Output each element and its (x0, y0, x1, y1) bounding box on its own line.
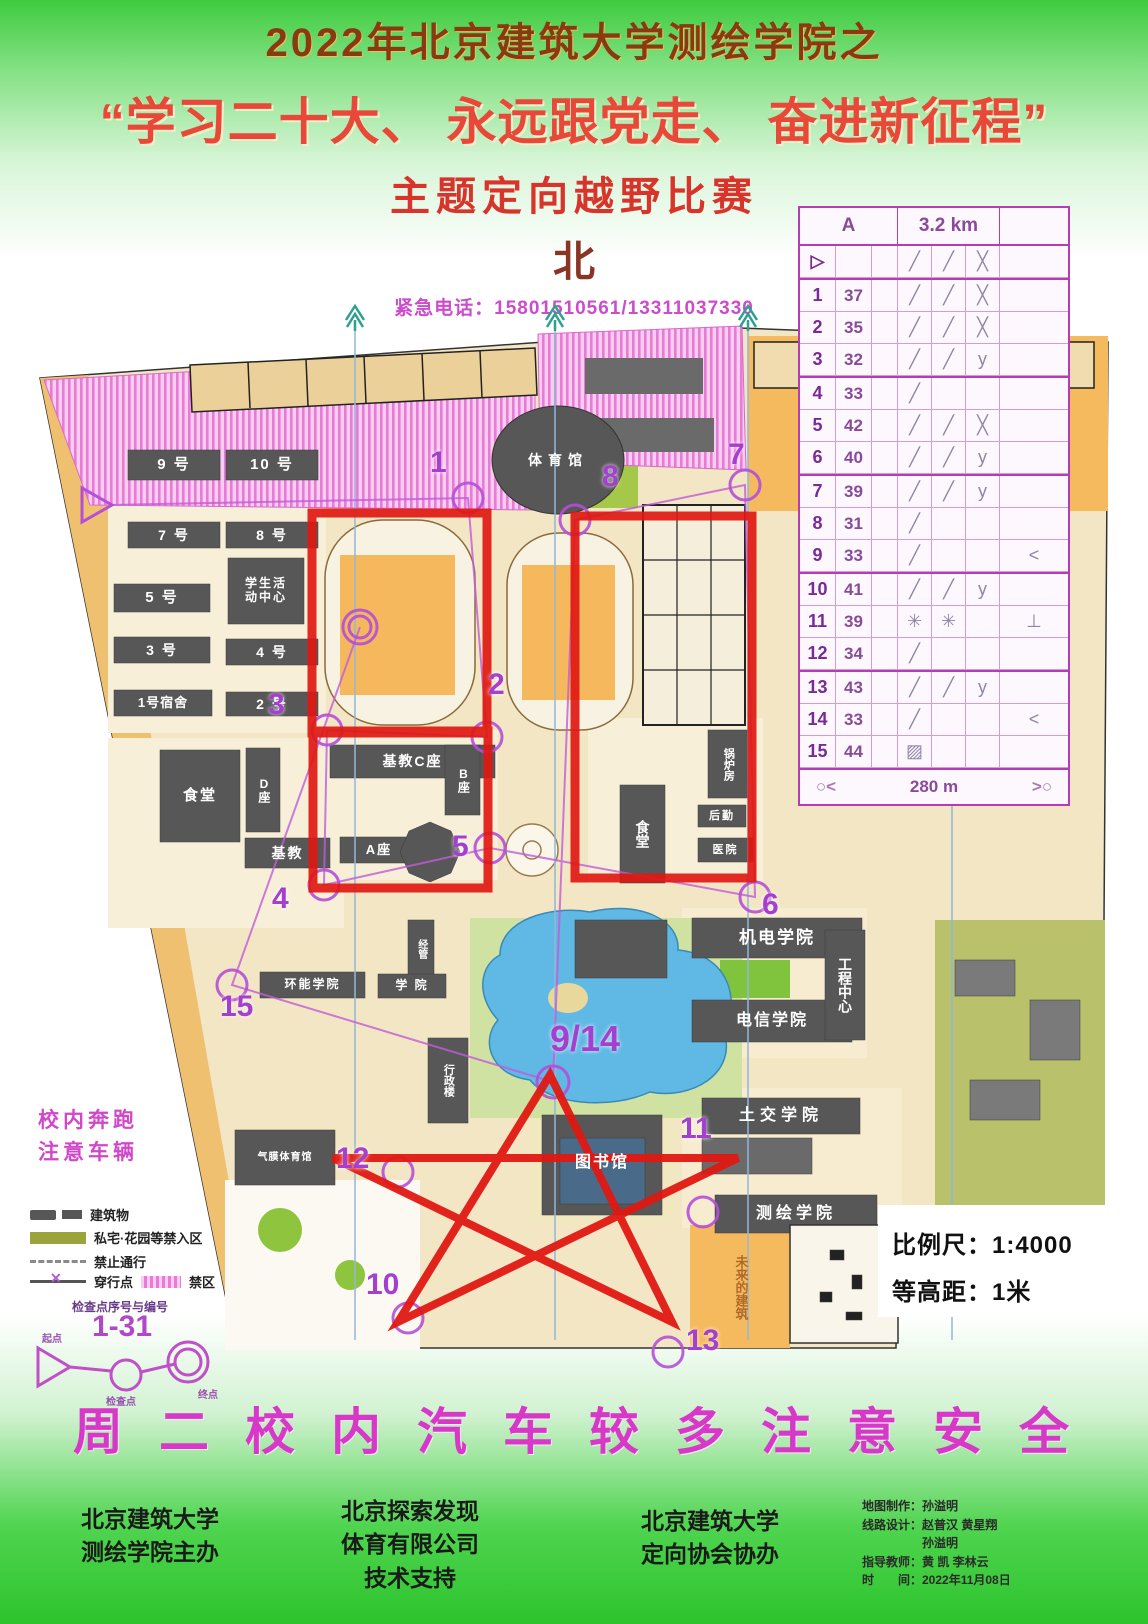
control-symbol-d: ╱ (898, 540, 932, 571)
legend-buildings-label: 建筑物 (90, 1205, 129, 1224)
control-empty-cell (872, 378, 898, 409)
legend-no-entry: 禁止通行 (30, 1252, 146, 1271)
credit-course-design2: 孙溢明 (862, 1534, 1132, 1553)
control-row: 15 44 ▨ (800, 736, 1068, 768)
control-code-cell: 35 (836, 312, 872, 343)
control-row: 13 43 ╱ ╱ y (800, 670, 1068, 704)
organizer-2-line2: 体育有限公司 (295, 1528, 525, 1561)
control-7: 7 (728, 438, 745, 472)
control-empty-cell (872, 246, 898, 277)
control-code-cell: 42 (836, 410, 872, 441)
control-number-cell: 2 (800, 312, 836, 343)
control-symbol-f: y (966, 476, 1000, 507)
no-entry-swatch-icon (30, 1260, 86, 1263)
credit-date: 时 间：2022年11月08日 (862, 1571, 1132, 1590)
control-number-cell: ▷ (800, 246, 836, 277)
control-symbol-d: ╱ (898, 312, 932, 343)
label-canteen-right: 食堂 (620, 785, 665, 883)
legend-private-label: 私宅·花园等禁入区 (94, 1228, 202, 1247)
legend-start-label: 起点 (42, 1330, 62, 1345)
control-symbol-d: ╱ (898, 442, 932, 473)
control-symbol-g (1000, 508, 1068, 539)
control-symbol-d: ✳ (898, 606, 932, 637)
control-symbol-e: ╱ (932, 442, 966, 473)
control-symbol-e (932, 540, 966, 571)
control-code-cell: 44 (836, 736, 872, 767)
scale-box: 比例尺：1:4000 等高距：1米 (878, 1205, 1110, 1317)
label-dorm9: 9 号 (128, 450, 220, 480)
control-code-cell: 33 (836, 378, 872, 409)
vehicle-warning: 校内奔跑 注意车辆 (38, 1105, 138, 1168)
poster: 2022年北京建筑大学测绘学院之 “学习二十大、 永远跟党走、 奋进新征程” 主… (0, 0, 1148, 1624)
vehicle-warning-line2: 注意车辆 (38, 1137, 138, 1169)
label-library: 图书馆 (542, 1138, 662, 1188)
control-symbol-f: y (966, 574, 1000, 605)
control-empty-cell (872, 704, 898, 735)
card-footer: ○< 280 m >○ (800, 768, 1068, 804)
control-code-cell (836, 246, 872, 277)
legend-forbidden-label: 禁区 (189, 1272, 215, 1291)
control-symbol-d: ╱ (898, 410, 932, 441)
organizer-2: 北京探索发现 体育有限公司 技术支持 (295, 1495, 525, 1595)
label-xingzheng: 行政楼 (428, 1038, 468, 1123)
label-student-center: 学生活 动中心 (228, 558, 304, 624)
control-symbol-d: ╱ (898, 574, 932, 605)
control-number-cell: 13 (800, 672, 836, 703)
label-student-center-line1: 学生活 (245, 577, 287, 591)
control-row: 3 32 ╱ ╱ y (800, 344, 1068, 376)
control-row: 2 35 ╱ ╱ ╳ (800, 312, 1068, 344)
control-number-cell: 7 (800, 476, 836, 507)
label-block-a: A座 (340, 837, 418, 863)
crossing-swatch-icon (30, 1280, 86, 1283)
control-symbol-f: y (966, 442, 1000, 473)
course-name: A (800, 208, 898, 244)
control-2: 2 (488, 668, 505, 702)
control-code-cell: 37 (836, 280, 872, 311)
control-9-14: 9/14 (550, 1018, 620, 1060)
control-symbol-f (966, 704, 1000, 735)
organizer-1-line2: 测绘学院主办 (40, 1536, 260, 1569)
label-huanneng: 环能学院 (260, 972, 365, 998)
control-row: 7 39 ╱ ╱ y (800, 474, 1068, 508)
control-symbol-e: ╱ (932, 574, 966, 605)
control-symbol-e (932, 638, 966, 669)
control-code-cell: 31 (836, 508, 872, 539)
organizer-2-line3: 技术支持 (295, 1562, 525, 1595)
control-number-cell: 12 (800, 638, 836, 669)
control-5: 5 (452, 830, 469, 864)
control-symbol-g (1000, 246, 1068, 277)
control-10: 10 (366, 1268, 399, 1302)
legend-no-entry-label: 禁止通行 (94, 1252, 146, 1271)
label-dorm8: 8 号 (226, 522, 318, 548)
control-symbol-f (966, 508, 1000, 539)
control-empty-cell (872, 508, 898, 539)
control-empty-cell (872, 442, 898, 473)
legend-crossing: 穿行点 禁区 (30, 1272, 215, 1291)
control-symbol-g (1000, 672, 1068, 703)
label-tujiao: 土交学院 (702, 1098, 860, 1134)
control-empty-cell (872, 540, 898, 571)
legend-crossing-label: 穿行点 (94, 1272, 133, 1291)
organizer-3-line2: 定向协会协办 (600, 1538, 820, 1571)
label-jingguan: 经管 (408, 920, 434, 978)
control-number-cell: 6 (800, 442, 836, 473)
organizer-1-line1: 北京建筑大学 (40, 1503, 260, 1536)
control-symbol-g: ⊥ (1000, 606, 1068, 637)
label-dorm4: 4 号 (226, 639, 318, 665)
control-empty-cell (872, 344, 898, 375)
vehicle-warning-line1: 校内奔跑 (38, 1105, 138, 1137)
control-number-cell: 10 (800, 574, 836, 605)
control-code-cell: 33 (836, 540, 872, 571)
control-empty-cell (872, 312, 898, 343)
card-header-spacer (1000, 208, 1068, 244)
control-symbol-d: ▨ (898, 736, 932, 767)
label-qimo: 气膜体育馆 (235, 1130, 335, 1185)
label-dorm1: 1号宿舍 (114, 690, 212, 716)
control-number-cell: 11 (800, 606, 836, 637)
organizer-2-line1: 北京探索发现 (295, 1495, 525, 1528)
contour-interval: 等高距：1米 (892, 1272, 1110, 1307)
control-symbol-e: ╱ (932, 246, 966, 277)
control-code-cell: 39 (836, 476, 872, 507)
credit-course-design: 线路设计：赵普汉 黄星翔 (862, 1516, 1132, 1535)
production-credits: 地图制作：孙溢明 线路设计：赵普汉 黄星翔 孙溢明 指导教师：黄 凯 李林云 时… (862, 1497, 1132, 1590)
finish-distance: 280 m (852, 777, 1016, 797)
control-code-cell: 32 (836, 344, 872, 375)
control-symbol-f (966, 540, 1000, 571)
legend-private: 私宅·花园等禁入区 (30, 1228, 202, 1247)
control-symbol-g (1000, 476, 1068, 507)
control-symbol-f (966, 736, 1000, 767)
organizer-3-line1: 北京建筑大学 (600, 1505, 820, 1538)
control-symbol-e: ╱ (932, 344, 966, 375)
control-symbol-e: ╱ (932, 476, 966, 507)
control-empty-cell (872, 606, 898, 637)
control-symbol-e (932, 508, 966, 539)
control-row: 11 39 ✳ ✳ ⊥ (800, 606, 1068, 638)
control-symbol-f (966, 606, 1000, 637)
control-symbol-e: ╱ (932, 410, 966, 441)
control-row: 8 31 ╱ (800, 508, 1068, 540)
control-empty-cell (872, 736, 898, 767)
control-1: 1 (430, 446, 447, 480)
label-dorm5: 5 号 (114, 584, 210, 612)
control-number-cell: 5 (800, 410, 836, 441)
control-13: 13 (686, 1324, 719, 1358)
control-symbol-e: ╱ (932, 312, 966, 343)
legend-codes-range: 1-31 (92, 1310, 152, 1344)
control-row: 4 33 ╱ (800, 376, 1068, 410)
control-symbol-d: ╱ (898, 508, 932, 539)
title-line1: 2022年北京建筑大学测绘学院之 (0, 10, 1148, 68)
control-symbol-f: ╳ (966, 410, 1000, 441)
control-symbol-d: ╱ (898, 638, 932, 669)
control-symbol-g (1000, 736, 1068, 767)
label-hospital: 医院 (698, 838, 753, 862)
control-symbol-g: < (1000, 540, 1068, 571)
control-symbol-f: y (966, 344, 1000, 375)
control-symbol-g (1000, 442, 1068, 473)
control-symbol-d: ╱ (898, 672, 932, 703)
forbidden-swatch-icon (141, 1276, 181, 1288)
control-code-cell: 34 (836, 638, 872, 669)
control-symbol-g (1000, 410, 1068, 441)
credit-map-maker: 地图制作：孙溢明 (862, 1497, 1132, 1516)
label-jijiao: 基教 (245, 838, 330, 868)
control-symbol-f: ╳ (966, 280, 1000, 311)
building-swatch2-icon (62, 1210, 82, 1219)
control-row: 14 33 ╱ < (800, 704, 1068, 736)
control-8: 8 (602, 460, 619, 494)
control-code-cell: 41 (836, 574, 872, 605)
control-symbol-e: ╱ (932, 280, 966, 311)
control-rows: ▷ ╱ ╱ ╳ 1 37 ╱ ╱ ╳ (800, 246, 1068, 768)
control-empty-cell (872, 638, 898, 669)
control-row: 5 42 ╱ ╱ ╳ (800, 410, 1068, 442)
label-gym: 体育馆 (500, 442, 616, 478)
control-number-cell: 3 (800, 344, 836, 375)
scale-ratio: 比例尺：1:4000 (892, 1225, 1110, 1260)
legend-diagram (38, 1342, 208, 1390)
private-area-swatch-icon (30, 1232, 86, 1244)
control-description-card: A 3.2 km ▷ ╱ ╱ ╳ 1 37 (798, 206, 1070, 806)
control-symbol-d: ╱ (898, 280, 932, 311)
control-3: 3 (268, 688, 285, 722)
control-number-cell: 15 (800, 736, 836, 767)
control-empty-cell (872, 476, 898, 507)
card-header: A 3.2 km (800, 208, 1068, 246)
legend-checkpoint-label: 检查点 (106, 1393, 136, 1408)
control-row: 1 37 ╱ ╱ ╳ (800, 278, 1068, 312)
label-student-center-line2: 动中心 (245, 591, 287, 605)
control-number-cell: 9 (800, 540, 836, 571)
label-dorm7: 7 号 (128, 522, 220, 548)
control-symbol-e (932, 378, 966, 409)
control-symbol-g (1000, 344, 1068, 375)
control-symbol-g (1000, 638, 1068, 669)
control-symbol-g (1000, 574, 1068, 605)
control-symbol-f: ╳ (966, 312, 1000, 343)
label-dorm3: 3 号 (114, 637, 210, 663)
credit-advisors: 指导教师：黄 凯 李林云 (862, 1553, 1132, 1572)
control-symbol-f (966, 378, 1000, 409)
control-symbol-g (1000, 378, 1068, 409)
organizer-1: 北京建筑大学 测绘学院主办 (40, 1503, 260, 1570)
organizer-3: 北京建筑大学 定向协会协办 (600, 1505, 820, 1572)
control-symbol-f: ╳ (966, 246, 1000, 277)
finish-symbol-left: ○< (800, 777, 852, 797)
control-symbol-f: y (966, 672, 1000, 703)
building-swatch-icon (30, 1210, 56, 1220)
control-number-cell: 1 (800, 280, 836, 311)
control-code-cell: 39 (836, 606, 872, 637)
course-distance: 3.2 km (898, 208, 1000, 244)
control-symbol-g (1000, 280, 1068, 311)
label-boiler: 锅炉房 (708, 730, 748, 798)
control-row: 6 40 ╱ ╱ y (800, 442, 1068, 474)
legend-buildings: 建筑物 (30, 1205, 129, 1224)
control-code-cell: 43 (836, 672, 872, 703)
control-empty-cell (872, 574, 898, 605)
control-symbol-d: ╱ (898, 344, 932, 375)
control-number-cell: 8 (800, 508, 836, 539)
label-canteen-left: 食堂 (160, 750, 240, 842)
control-number-cell: 4 (800, 378, 836, 409)
control-number-cell: 14 (800, 704, 836, 735)
control-symbol-f (966, 638, 1000, 669)
control-symbol-e (932, 704, 966, 735)
control-symbol-d: ╱ (898, 246, 932, 277)
control-symbol-e: ╱ (932, 672, 966, 703)
control-empty-cell (872, 280, 898, 311)
label-dorm10: 10 号 (226, 450, 318, 480)
control-12: 12 (336, 1142, 369, 1176)
control-symbol-d: ╱ (898, 476, 932, 507)
control-11: 11 (680, 1112, 712, 1146)
safety-banner: 周二校内汽车较多注意安全 (0, 1392, 1148, 1464)
label-block-b: B座 (445, 745, 480, 815)
title-line2: “学习二十大、 永远跟党走、 奋进新征程” (0, 82, 1148, 154)
legend-finish-label: 终点 (198, 1386, 218, 1401)
control-symbol-e: ✳ (932, 606, 966, 637)
control-6: 6 (762, 888, 779, 922)
control-symbol-g: < (1000, 704, 1068, 735)
label-logistics: 后勤 (698, 805, 746, 827)
credits: 北京建筑大学 测绘学院主办 北京探索发现 体育有限公司 技术支持 北京建筑大学 … (0, 1495, 1148, 1615)
control-4: 4 (272, 882, 289, 916)
finish-symbol-right: >○ (1016, 777, 1068, 797)
label-gongcheng: 工程中心 (825, 930, 865, 1040)
north-tree-icon (346, 306, 757, 331)
control-empty-cell (872, 410, 898, 441)
control-symbol-d: ╱ (898, 378, 932, 409)
control-code-cell: 40 (836, 442, 872, 473)
control-empty-cell (872, 672, 898, 703)
control-row: 12 34 ╱ (800, 638, 1068, 670)
control-symbol-d: ╱ (898, 704, 932, 735)
control-symbol-g (1000, 312, 1068, 343)
control-row: 9 33 ╱ < (800, 540, 1068, 572)
control-code-cell: 33 (836, 704, 872, 735)
control-symbol-e (932, 736, 966, 767)
control-row: 10 41 ╱ ╱ y (800, 572, 1068, 606)
control-row: ▷ ╱ ╱ ╳ (800, 246, 1068, 278)
control-15: 15 (220, 990, 253, 1024)
label-block-d: D座 (246, 748, 280, 832)
